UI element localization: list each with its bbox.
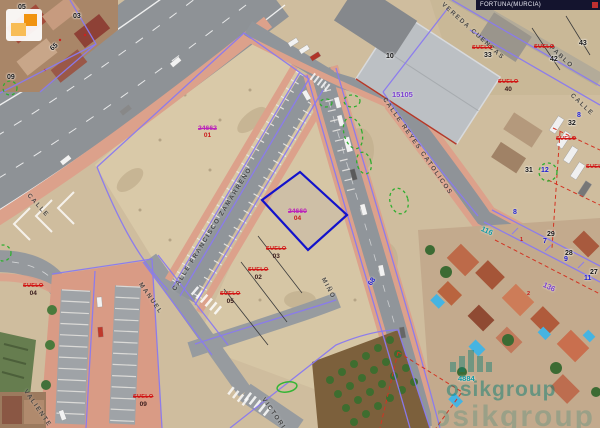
suelo-parcel-label: SUELO09 (133, 395, 153, 408)
suelo-parcel-label: SUELO40 (498, 80, 518, 93)
parcel-number: 03 (73, 13, 81, 20)
street-label: CALLE REYES CATOLICOS (381, 97, 453, 197)
street-label: VICTORIA (260, 397, 290, 428)
municipality-title: FORTUNA(MURCIA) (476, 0, 592, 10)
street-label: CALLE (25, 193, 49, 219)
parcel-number: 33 (484, 52, 492, 59)
parcel-number: 65 (49, 42, 59, 52)
municipality-title-bar: FORTUNA(MURCIA) (476, 0, 600, 10)
axis-number: 8 (513, 209, 517, 216)
parcel-number: 10 (386, 53, 394, 60)
axis-number: 68 (367, 277, 377, 287)
suelo-parcel-label: SUELO04 (23, 284, 43, 297)
house-number: 1 (520, 238, 523, 244)
cadastral-ref-label: 2466201 (198, 126, 217, 139)
street-ref-number: 116 (480, 225, 494, 237)
suelo-parcel-label: SUELO02 (248, 268, 268, 281)
parcel-number: 32 (568, 120, 576, 127)
suelo-parcel-label: SUELO (534, 45, 554, 51)
suelo-parcel-label: SUELO (556, 137, 576, 143)
parcel-number: 43 (579, 40, 587, 47)
street-label: CALLE (569, 93, 595, 118)
axis-number: 9 (564, 256, 568, 263)
suelo-parcel-label: SUELO (472, 46, 492, 52)
parcel-number: 29 (547, 231, 555, 238)
axis-number: 11 (584, 275, 591, 282)
street-ref-number: 4884 (458, 375, 475, 383)
axis-number: 7 (543, 238, 547, 245)
parcel-number: 31 (525, 167, 533, 174)
street-label: VALIENTE (22, 389, 52, 428)
house-number: 2 (527, 292, 530, 298)
axis-number: 12 (541, 167, 549, 174)
parcel-number: 42 (550, 56, 558, 63)
logo-light-orange-square-icon (11, 23, 26, 36)
map-ref-number: 136 (542, 281, 557, 293)
street-label: VEREDA CUENCAS (440, 2, 505, 62)
street-label: MANUEL (137, 282, 163, 316)
suelo-parcel-label: SUELO (586, 165, 600, 171)
map-labels-layer: CALLECALLE FRANCISCO ZAMARREÑOMANUELMIÑO… (0, 0, 600, 428)
cadastral-ref-label: 2466004 (288, 209, 307, 222)
parcel-number: 09 (7, 74, 15, 81)
street-label: MIÑO (319, 277, 335, 300)
close-red-square-icon[interactable] (592, 2, 598, 8)
suelo-parcel-label: SUELO03 (266, 247, 286, 260)
cadastral-map-viewport[interactable]: CALLECALLE FRANCISCO ZAMARREÑOMANUELMIÑO… (0, 0, 600, 428)
axis-number: 8 (577, 112, 581, 119)
suelo-parcel-label: SUELO05 (220, 292, 240, 305)
map-ref-number: 15105 (392, 91, 413, 99)
street-label: CALLE FRANCISCO ZAMARREÑO (172, 167, 254, 293)
viewer-logo (6, 9, 42, 41)
